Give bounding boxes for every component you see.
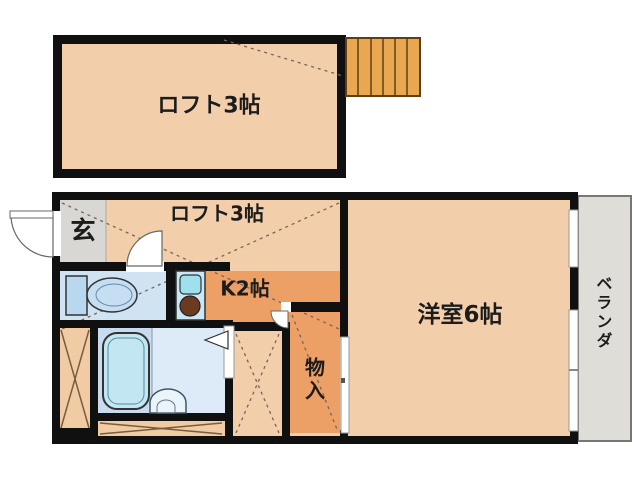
kitchen-unit — [176, 271, 205, 320]
label-storage: 物入 — [303, 357, 324, 403]
bathtub — [103, 333, 149, 409]
floor-plan-drawing — [0, 0, 640, 480]
label-western-room: 洋室6帖 — [417, 303, 502, 327]
window-upper — [569, 210, 578, 267]
label-kitchen: K2帖 — [220, 279, 269, 300]
staircase — [346, 38, 420, 96]
label-entrance: 玄 — [70, 218, 95, 244]
entrance-door — [11, 215, 53, 257]
kitchen-sink — [180, 275, 201, 294]
sliding-door — [341, 337, 349, 433]
label-veranda: ベランダ — [594, 275, 611, 351]
washbasin — [150, 389, 186, 413]
label-loft-upper: ロフト3帖 — [157, 94, 260, 117]
underloft-closet-floor — [233, 331, 282, 436]
toilet — [66, 276, 137, 315]
floor-plan: ロフト3帖 ロフト3帖 玄 K2帖 物入 洋室6帖 ベランダ — [0, 0, 640, 480]
label-loft-lower: ロフト3帖 — [170, 204, 264, 225]
stove-burner — [180, 296, 200, 316]
